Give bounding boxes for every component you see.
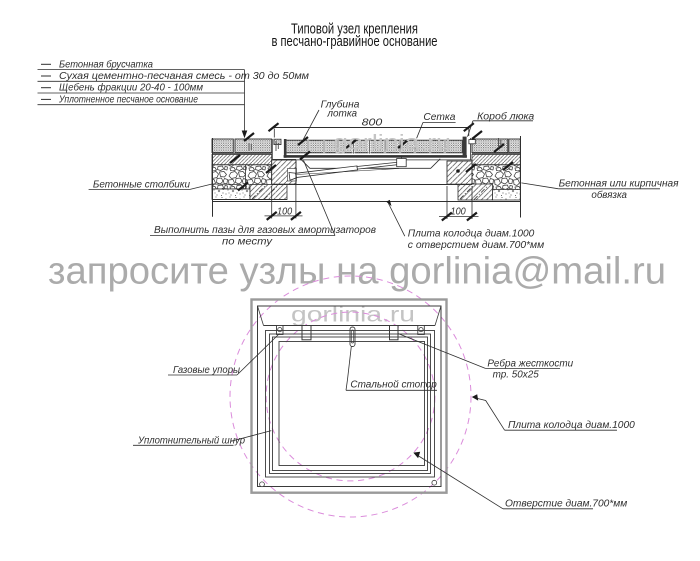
svg-text:Выполнить пазы для газовых амо: Выполнить пазы для газовых амортизаторов	[154, 225, 376, 236]
svg-text:gorlinia.ru: gorlinia.ru	[333, 131, 451, 155]
svg-text:Щебень фракции 20-40 - 100мм: Щебень фракции 20-40 - 100мм	[59, 82, 203, 94]
svg-text:Сетка: Сетка	[423, 112, 455, 123]
svg-text:лотка: лотка	[326, 109, 357, 120]
svg-text:запросите узлы на gorlinia@mai: запросите узлы на gorlinia@mail.ru	[48, 251, 666, 293]
svg-text:Сухая цементно-песчаная смесь: Сухая цементно-песчаная смесь - от 30 до…	[59, 71, 309, 82]
svg-text:100: 100	[451, 206, 466, 218]
svg-text:Ребра жесткости: Ребра жесткости	[487, 357, 573, 369]
svg-text:Бетонные столбики: Бетонные столбики	[93, 179, 191, 191]
svg-text:Бетонная брусчатка: Бетонная брусчатка	[59, 58, 153, 70]
svg-text:Стальной стопор: Стальной стопор	[350, 379, 437, 390]
svg-text:Отверстие диам.700*мм: Отверстие диам.700*мм	[505, 498, 627, 509]
svg-text:800: 800	[362, 116, 383, 128]
svg-text:с отверстием диам.700*мм: с отверстием диам.700*мм	[408, 240, 545, 251]
svg-text:Уплотнительный шнур: Уплотнительный шнур	[137, 435, 245, 446]
svg-text:в песчано-гравийное основание: в песчано-гравийное основание	[272, 34, 438, 50]
svg-text:Плита колодца диам.1000: Плита колодца диам.1000	[408, 229, 535, 240]
svg-text:тр. 50х25: тр. 50х25	[493, 369, 540, 380]
svg-text:Газовые упоры: Газовые упоры	[173, 365, 241, 376]
svg-text:обвязка: обвязка	[591, 189, 627, 201]
svg-text:Плита колодца диам.1000: Плита колодца диам.1000	[508, 420, 635, 431]
svg-text:Уплотненное песчаное основание: Уплотненное песчаное основание	[58, 94, 198, 105]
svg-text:Бетонная или кирпичная: Бетонная или кирпичная	[559, 179, 680, 190]
svg-text:по месту: по месту	[222, 237, 273, 248]
